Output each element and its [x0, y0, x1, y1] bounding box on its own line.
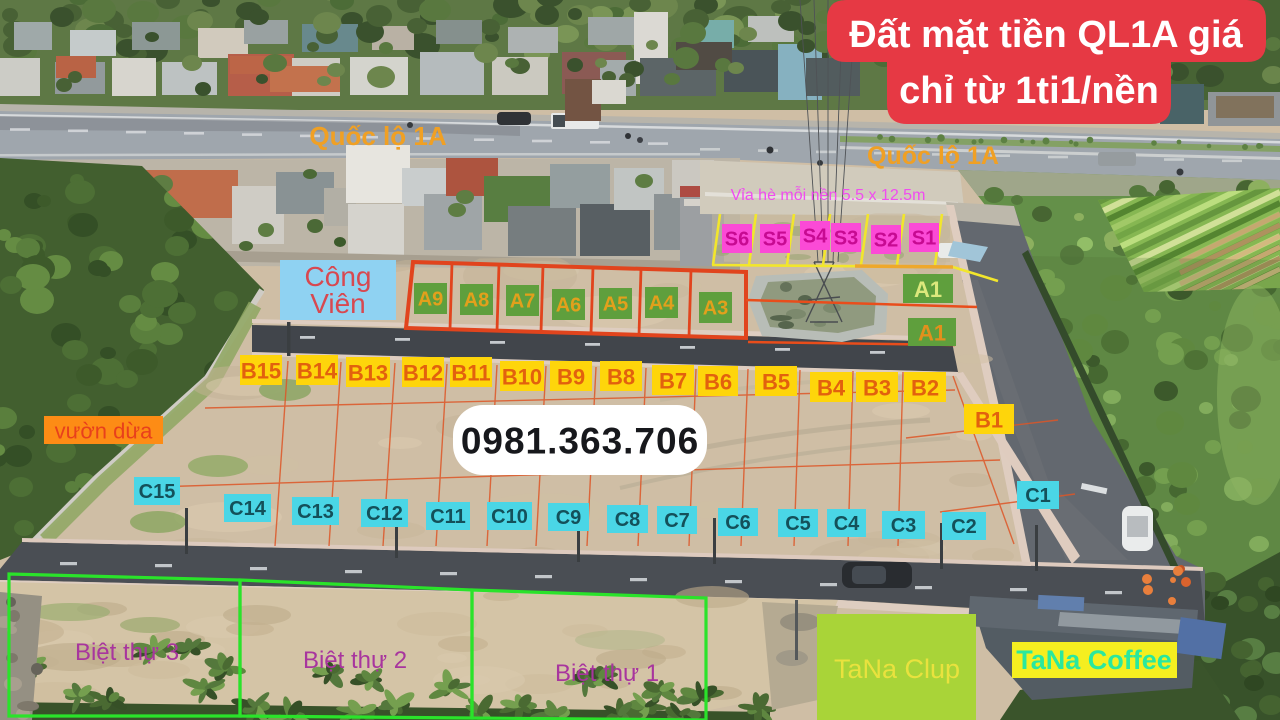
svg-text:chỉ từ 1ti1/nền: chỉ từ 1ti1/nền — [899, 70, 1159, 112]
svg-text:C14: C14 — [229, 498, 267, 520]
svg-text:B11: B11 — [451, 361, 490, 386]
svg-text:Đất mặt tiền QL1A giá: Đất mặt tiền QL1A giá — [849, 14, 1243, 56]
svg-text:A1: A1 — [914, 277, 942, 302]
svg-text:S2: S2 — [874, 230, 898, 252]
svg-text:S5: S5 — [763, 229, 787, 251]
svg-text:A6: A6 — [556, 295, 582, 317]
svg-text:A7: A7 — [510, 291, 536, 313]
svg-text:B2: B2 — [911, 376, 939, 401]
svg-text:Biệt thự 1: Biệt thự 1 — [555, 660, 659, 687]
svg-text:A4: A4 — [649, 293, 675, 315]
svg-text:C9: C9 — [556, 507, 582, 529]
svg-text:C12: C12 — [366, 503, 403, 525]
svg-text:B5: B5 — [762, 370, 790, 395]
svg-text:S1: S1 — [912, 228, 936, 250]
svg-text:TaNa Clup: TaNa Clup — [834, 654, 960, 684]
svg-text:C10: C10 — [491, 506, 528, 528]
svg-text:B8: B8 — [607, 365, 635, 390]
svg-text:B13: B13 — [348, 361, 388, 386]
svg-text:B7: B7 — [659, 369, 687, 394]
svg-text:Biệt thự 3: Biệt thự 3 — [75, 639, 179, 666]
svg-text:C6: C6 — [725, 512, 751, 534]
svg-text:B10: B10 — [502, 365, 542, 390]
svg-text:C15: C15 — [139, 481, 176, 503]
svg-text:Vỉa hè mỗi nền 5.5 x 12.5m: Vỉa hè mỗi nền 5.5 x 12.5m — [731, 185, 926, 204]
svg-text:C11: C11 — [430, 506, 466, 528]
svg-text:A8: A8 — [464, 290, 490, 312]
svg-text:C1: C1 — [1025, 485, 1051, 507]
svg-text:B1: B1 — [975, 408, 1003, 433]
svg-text:A1: A1 — [918, 321, 946, 346]
svg-text:0981.363.706: 0981.363.706 — [461, 421, 699, 462]
svg-text:Quốc lộ 1A: Quốc lộ 1A — [867, 142, 999, 170]
svg-text:vườn dừa: vườn dừa — [55, 419, 153, 444]
svg-text:C4: C4 — [834, 513, 860, 535]
svg-text:Viên: Viên — [310, 288, 366, 319]
svg-text:B3: B3 — [863, 376, 891, 401]
svg-text:S3: S3 — [834, 228, 858, 250]
svg-text:Biệt thự 2: Biệt thự 2 — [303, 647, 407, 674]
svg-text:B12: B12 — [403, 361, 443, 386]
svg-text:Quốc lộ 1A: Quốc lộ 1A — [309, 121, 446, 151]
svg-text:B9: B9 — [557, 365, 585, 390]
svg-text:B4: B4 — [817, 376, 846, 401]
svg-text:S6: S6 — [725, 229, 749, 251]
svg-text:C7: C7 — [664, 510, 690, 532]
svg-text:A3: A3 — [703, 298, 729, 320]
svg-text:S4: S4 — [803, 226, 828, 248]
svg-text:C5: C5 — [785, 513, 811, 535]
svg-text:A9: A9 — [418, 289, 444, 311]
svg-text:C8: C8 — [615, 509, 641, 531]
svg-text:C3: C3 — [891, 515, 917, 537]
svg-text:C13: C13 — [297, 501, 334, 523]
svg-text:TaNa Coffee: TaNa Coffee — [1016, 645, 1172, 675]
svg-text:B6: B6 — [704, 370, 732, 395]
svg-text:B15: B15 — [241, 359, 281, 384]
svg-text:B14: B14 — [297, 359, 338, 384]
svg-text:C2: C2 — [951, 516, 977, 538]
svg-text:A5: A5 — [603, 294, 629, 316]
